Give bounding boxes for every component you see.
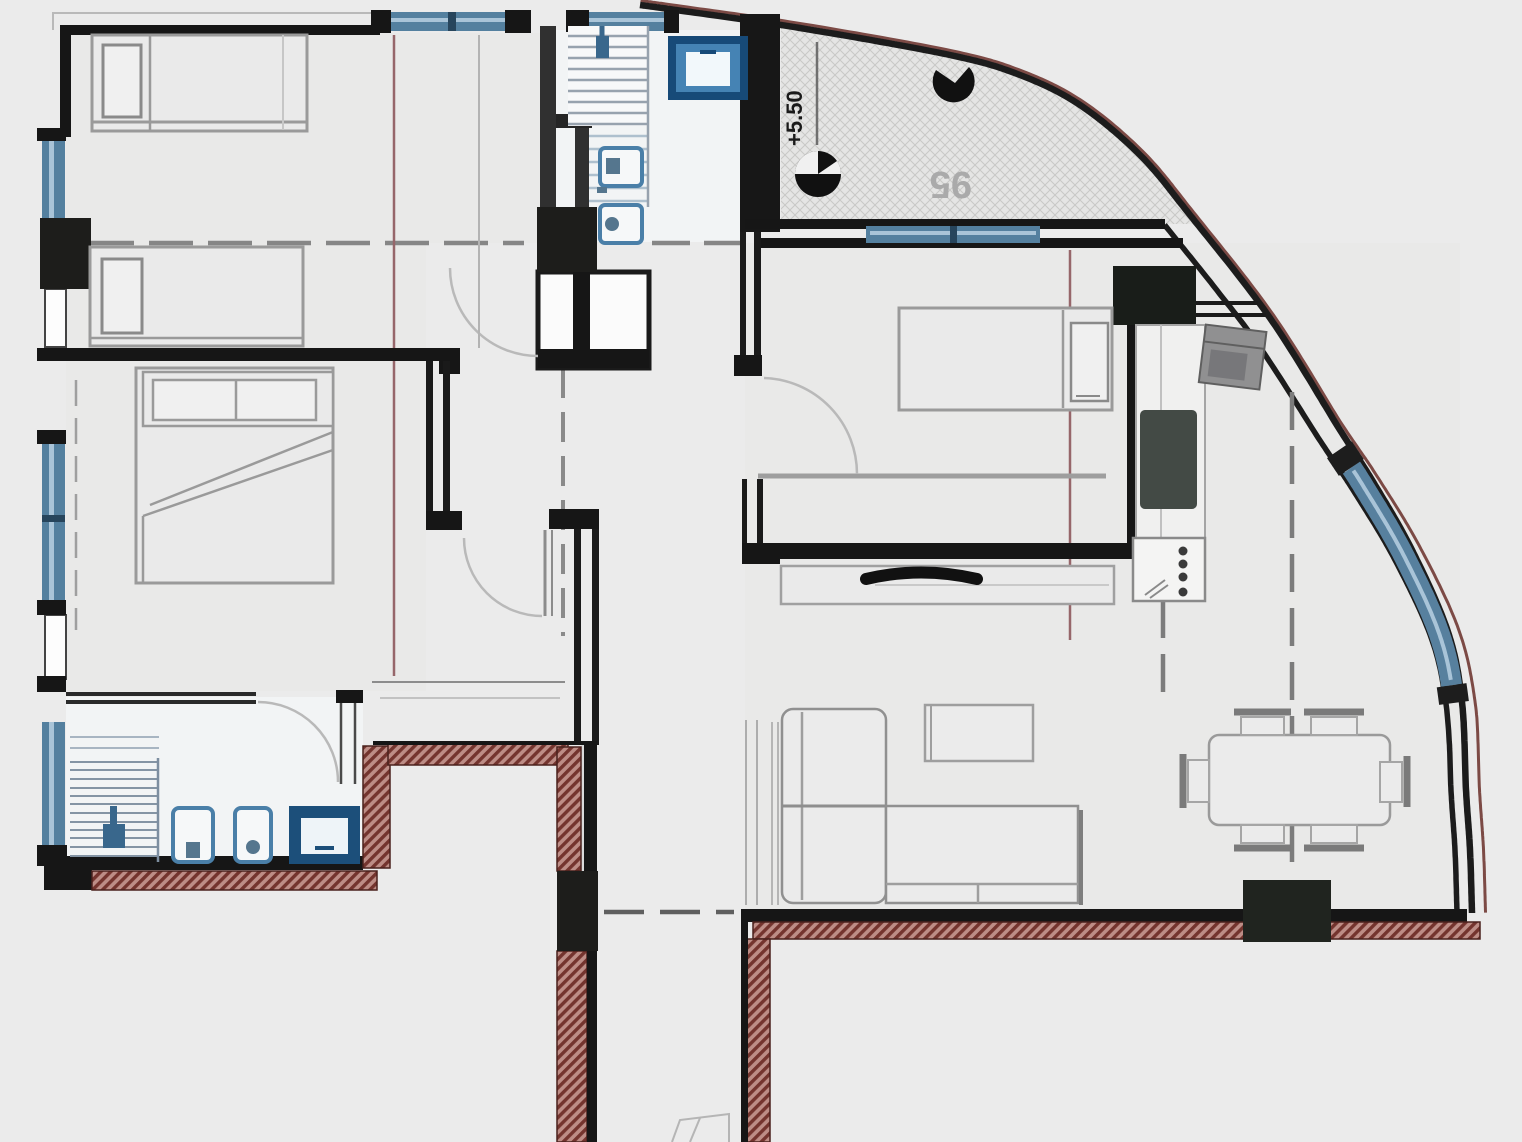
- svg-text:95: 95: [930, 163, 972, 205]
- svg-text:+5.50: +5.50: [782, 90, 807, 146]
